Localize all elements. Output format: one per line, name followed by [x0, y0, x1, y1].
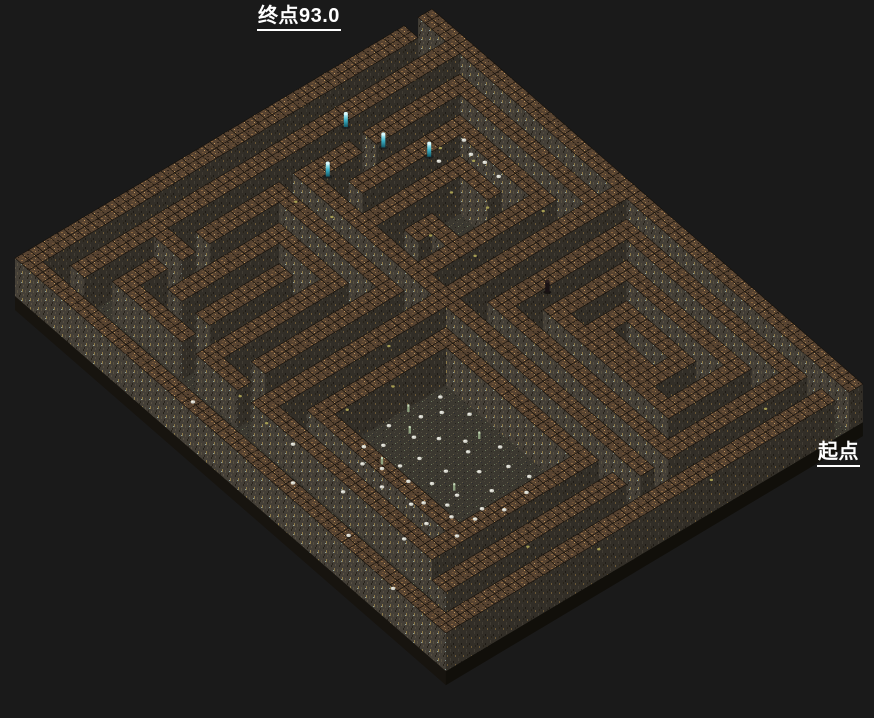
- end-point-label[interactable]: 终点93.0: [257, 5, 341, 31]
- start-point-label[interactable]: 起点: [817, 441, 860, 467]
- maze-viewport: 终点93.0 起点: [0, 0, 874, 718]
- maze-canvas: [0, 0, 874, 718]
- game-screen: { "labels": { "end": { "text": "终点93.0" …: [0, 0, 874, 718]
